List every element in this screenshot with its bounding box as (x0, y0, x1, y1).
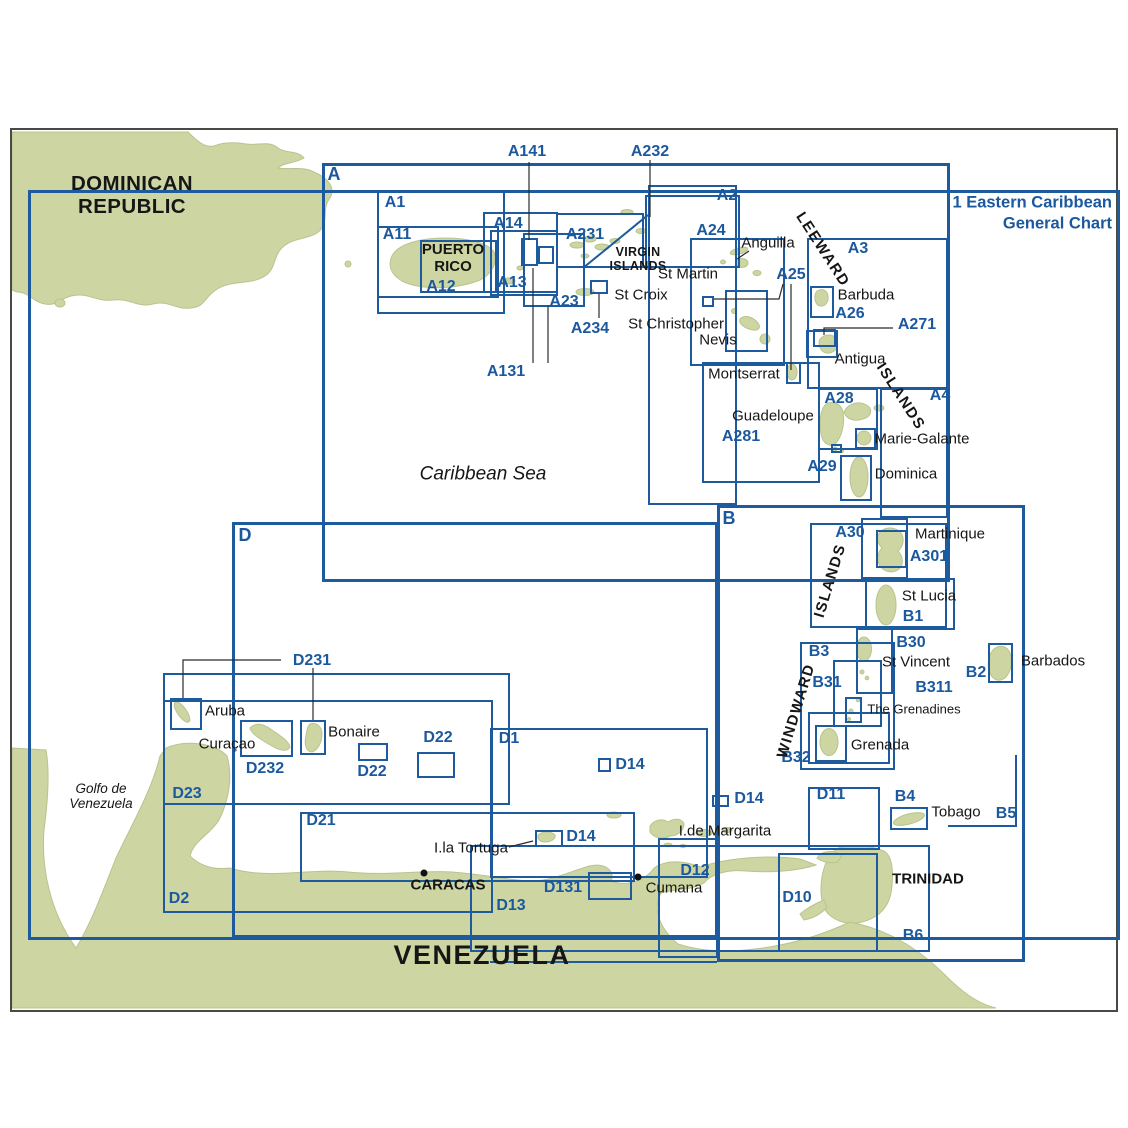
label-line: Venezuela (69, 796, 132, 811)
place-label-grenada: Grenada (851, 738, 909, 755)
chart-label-a26: A26 (835, 305, 864, 323)
chart-label-d14: D14 (566, 828, 595, 846)
place-label-st-vincent: St Vincent (882, 655, 950, 672)
label-line: General Chart (952, 214, 1112, 235)
place-label-tobago: Tobago (931, 805, 980, 822)
chart-label-a281: A281 (722, 428, 760, 446)
chart-label-b31: B31 (812, 674, 841, 692)
place-label-barbuda: Barbuda (838, 288, 895, 305)
place-label-puerto-rico: PUERTORICO (422, 242, 484, 276)
place-label-i-de-margarita: I.de Margarita (679, 824, 772, 841)
chart-label-d11: D11 (817, 786, 845, 804)
chart-label-a234: A234 (571, 320, 609, 338)
chart-label-d14: D14 (615, 756, 644, 774)
chart-label-a29: A29 (807, 458, 836, 476)
chart-label-d131: D131 (544, 879, 582, 897)
chart-label-a2: A2 (717, 187, 737, 205)
place-label-dominican-republic: DOMINICANREPUBLIC (71, 173, 193, 219)
label-line: RICO (422, 259, 484, 276)
chart-label-d: D (239, 525, 252, 545)
label-line: DOMINICAN (71, 173, 193, 196)
chart-label-d14: D14 (734, 790, 763, 808)
place-label-st-lucia: St Lucia (902, 589, 956, 606)
place-label-marie-galante: Marie-Galante (874, 432, 969, 449)
place-label-cura-ao: Curaçao (199, 737, 256, 754)
place-label-martinique: Martinique (915, 527, 985, 544)
chart-label-b311: B311 (915, 679, 952, 697)
leader-line (714, 284, 783, 299)
leader-line (509, 841, 533, 847)
chart-label-b6: B6 (903, 927, 923, 945)
place-label-st-martin: St Martin (658, 267, 718, 284)
chart-label-d231: D231 (293, 652, 331, 670)
chart-label-a30: A30 (835, 524, 864, 542)
place-label-barbados: Barbados (1021, 654, 1085, 671)
chart-label-b30: B30 (896, 634, 925, 652)
place-label-the-grenadines: The Grenadines (867, 703, 960, 718)
chart-label-d22: D22 (357, 763, 386, 781)
place-label-venezuela: VENEZUELA (393, 940, 570, 970)
place-label-dominica: Dominica (875, 467, 938, 484)
chart-label-b4: B4 (895, 788, 915, 806)
chart-label-1-eastern-caribbean-general-chart: 1 Eastern CaribbeanGeneral Chart (952, 193, 1112, 236)
chart-label-a232: A232 (631, 143, 669, 161)
chart-label-a28: A28 (824, 390, 853, 408)
place-label-cumana: Cumana (646, 881, 703, 898)
chart-index-map: ABD1 Eastern CaribbeanGeneral ChartA1A11… (0, 0, 1128, 1128)
chart-label-d21: D21 (306, 812, 335, 830)
label-line: REPUBLIC (71, 196, 193, 219)
chart-label-b5: B5 (996, 805, 1016, 823)
place-label-trinidad: TRINIDAD (892, 872, 964, 889)
chart-label-a3: A3 (848, 240, 868, 258)
chart-label-a271: A271 (898, 316, 936, 334)
label-line: Golfo de (69, 781, 132, 796)
leader-line (183, 660, 281, 698)
chart-label-a11: A11 (383, 226, 411, 244)
chart-label-a301: A301 (910, 548, 948, 566)
chart-label-d232: D232 (246, 760, 284, 778)
chart-label-a131: A131 (487, 363, 525, 381)
chart-label-a13: A13 (497, 274, 526, 292)
label-line: VIRGIN (610, 245, 667, 259)
chart-label-a231: A231 (566, 226, 604, 244)
chart-label-d2: D2 (169, 890, 189, 908)
chart-label-d1: D1 (499, 730, 519, 748)
chart-label-b: B (723, 508, 736, 528)
place-label-aruba: Aruba (205, 704, 245, 721)
label-line: 1 Eastern Caribbean (952, 193, 1112, 214)
chart-label-b2: B2 (966, 664, 986, 682)
chart-label-a141: A141 (508, 143, 546, 161)
place-label-i-la-tortuga: I.la Tortuga (434, 841, 508, 858)
chart-label-a25: A25 (776, 266, 805, 284)
city-dot (635, 874, 642, 881)
place-label-guadeloupe: Guadeloupe (732, 409, 814, 426)
chart-label-b1: B1 (903, 608, 923, 626)
place-label-st-croix: St Croix (614, 288, 667, 305)
chart-label-a4: A4 (930, 387, 950, 405)
place-label-montserrat: Montserrat (708, 367, 780, 384)
label-line: PUERTO (422, 242, 484, 259)
chart-label-a12: A12 (426, 278, 455, 296)
place-label-golfo-de-venezuela: Golfo deVenezuela (69, 781, 132, 811)
chart-label-d13: D13 (496, 897, 525, 915)
chart-label-d10: D10 (782, 889, 811, 907)
chart-label-a23: A23 (549, 293, 578, 311)
chart-label-d12: D12 (680, 862, 709, 880)
chart-label-d23: D23 (172, 785, 201, 803)
chart-label-a14: A14 (493, 215, 522, 233)
chart-label-a24: A24 (696, 222, 725, 240)
chart-label-d22: D22 (423, 729, 452, 747)
chart-label-b3: B3 (809, 643, 829, 661)
place-label-anguilla: Anguilla (741, 236, 794, 253)
chart-label-a1: A1 (385, 194, 405, 212)
leader-line (824, 328, 893, 335)
place-label-bonaire: Bonaire (328, 725, 380, 742)
city-dot (421, 870, 428, 877)
chart-label-a: A (328, 164, 341, 184)
place-label-caracas: CARACAS (411, 878, 486, 895)
place-label-caribbean-sea: Caribbean Sea (420, 463, 547, 484)
place-label-nevis: Nevis (699, 333, 737, 350)
